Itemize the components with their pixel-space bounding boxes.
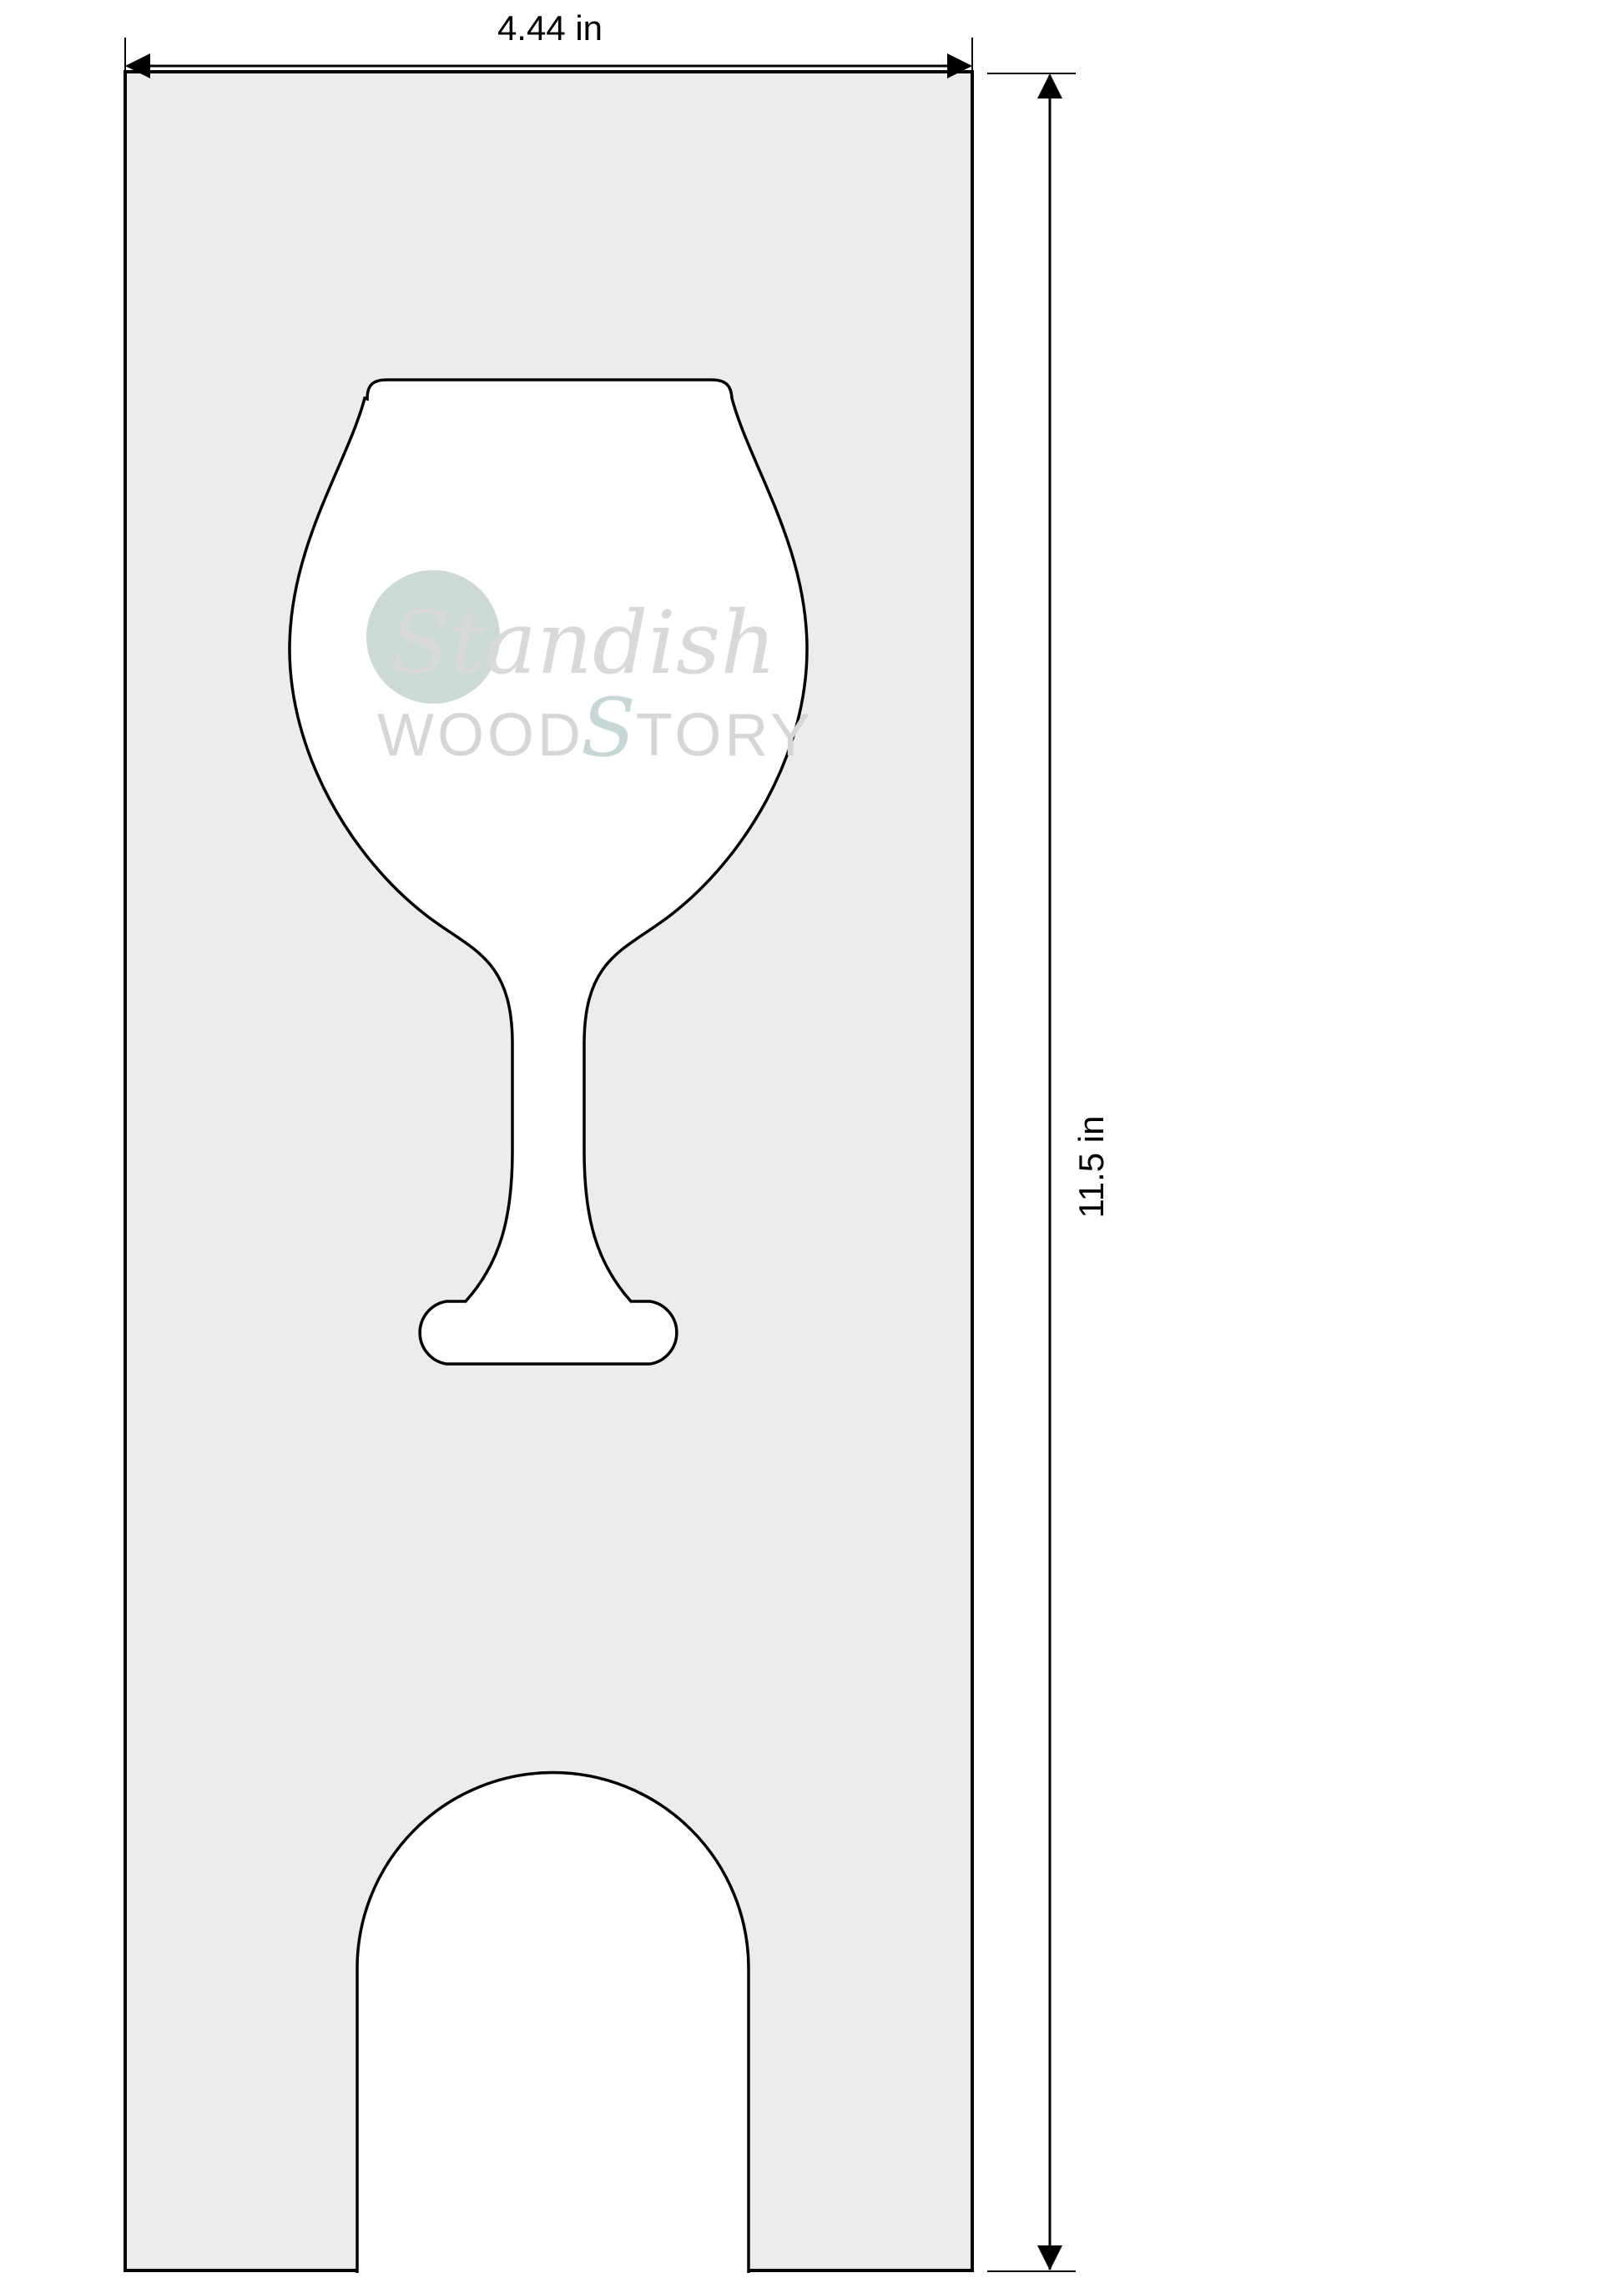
width-dimension: 4.44 in [125, 8, 972, 78]
logo-wordmark-right: TORY [636, 702, 814, 769]
logo-wordmark-script-s: S [581, 681, 639, 775]
height-dimension-label: 11.5 in [1072, 1116, 1111, 1219]
height-dimension: 11.5 in [987, 73, 1111, 2271]
arch-cutout [357, 1773, 749, 2274]
width-dimension-label: 4.44 in [497, 8, 603, 48]
logo-script-word: Standish [391, 592, 776, 694]
drawing-page: Standish WOODSTORY 4.44 in 11.5 in [0, 0, 1624, 2293]
template-drawing: Standish WOODSTORY 4.44 in 11.5 in [0, 0, 1624, 2293]
logo-watermark: Standish WOODSTORY [366, 570, 814, 775]
arrow-up-icon [1037, 73, 1062, 98]
logo-wordmark-left: WOOD [377, 702, 584, 769]
arrow-down-icon [1037, 2245, 1062, 2270]
